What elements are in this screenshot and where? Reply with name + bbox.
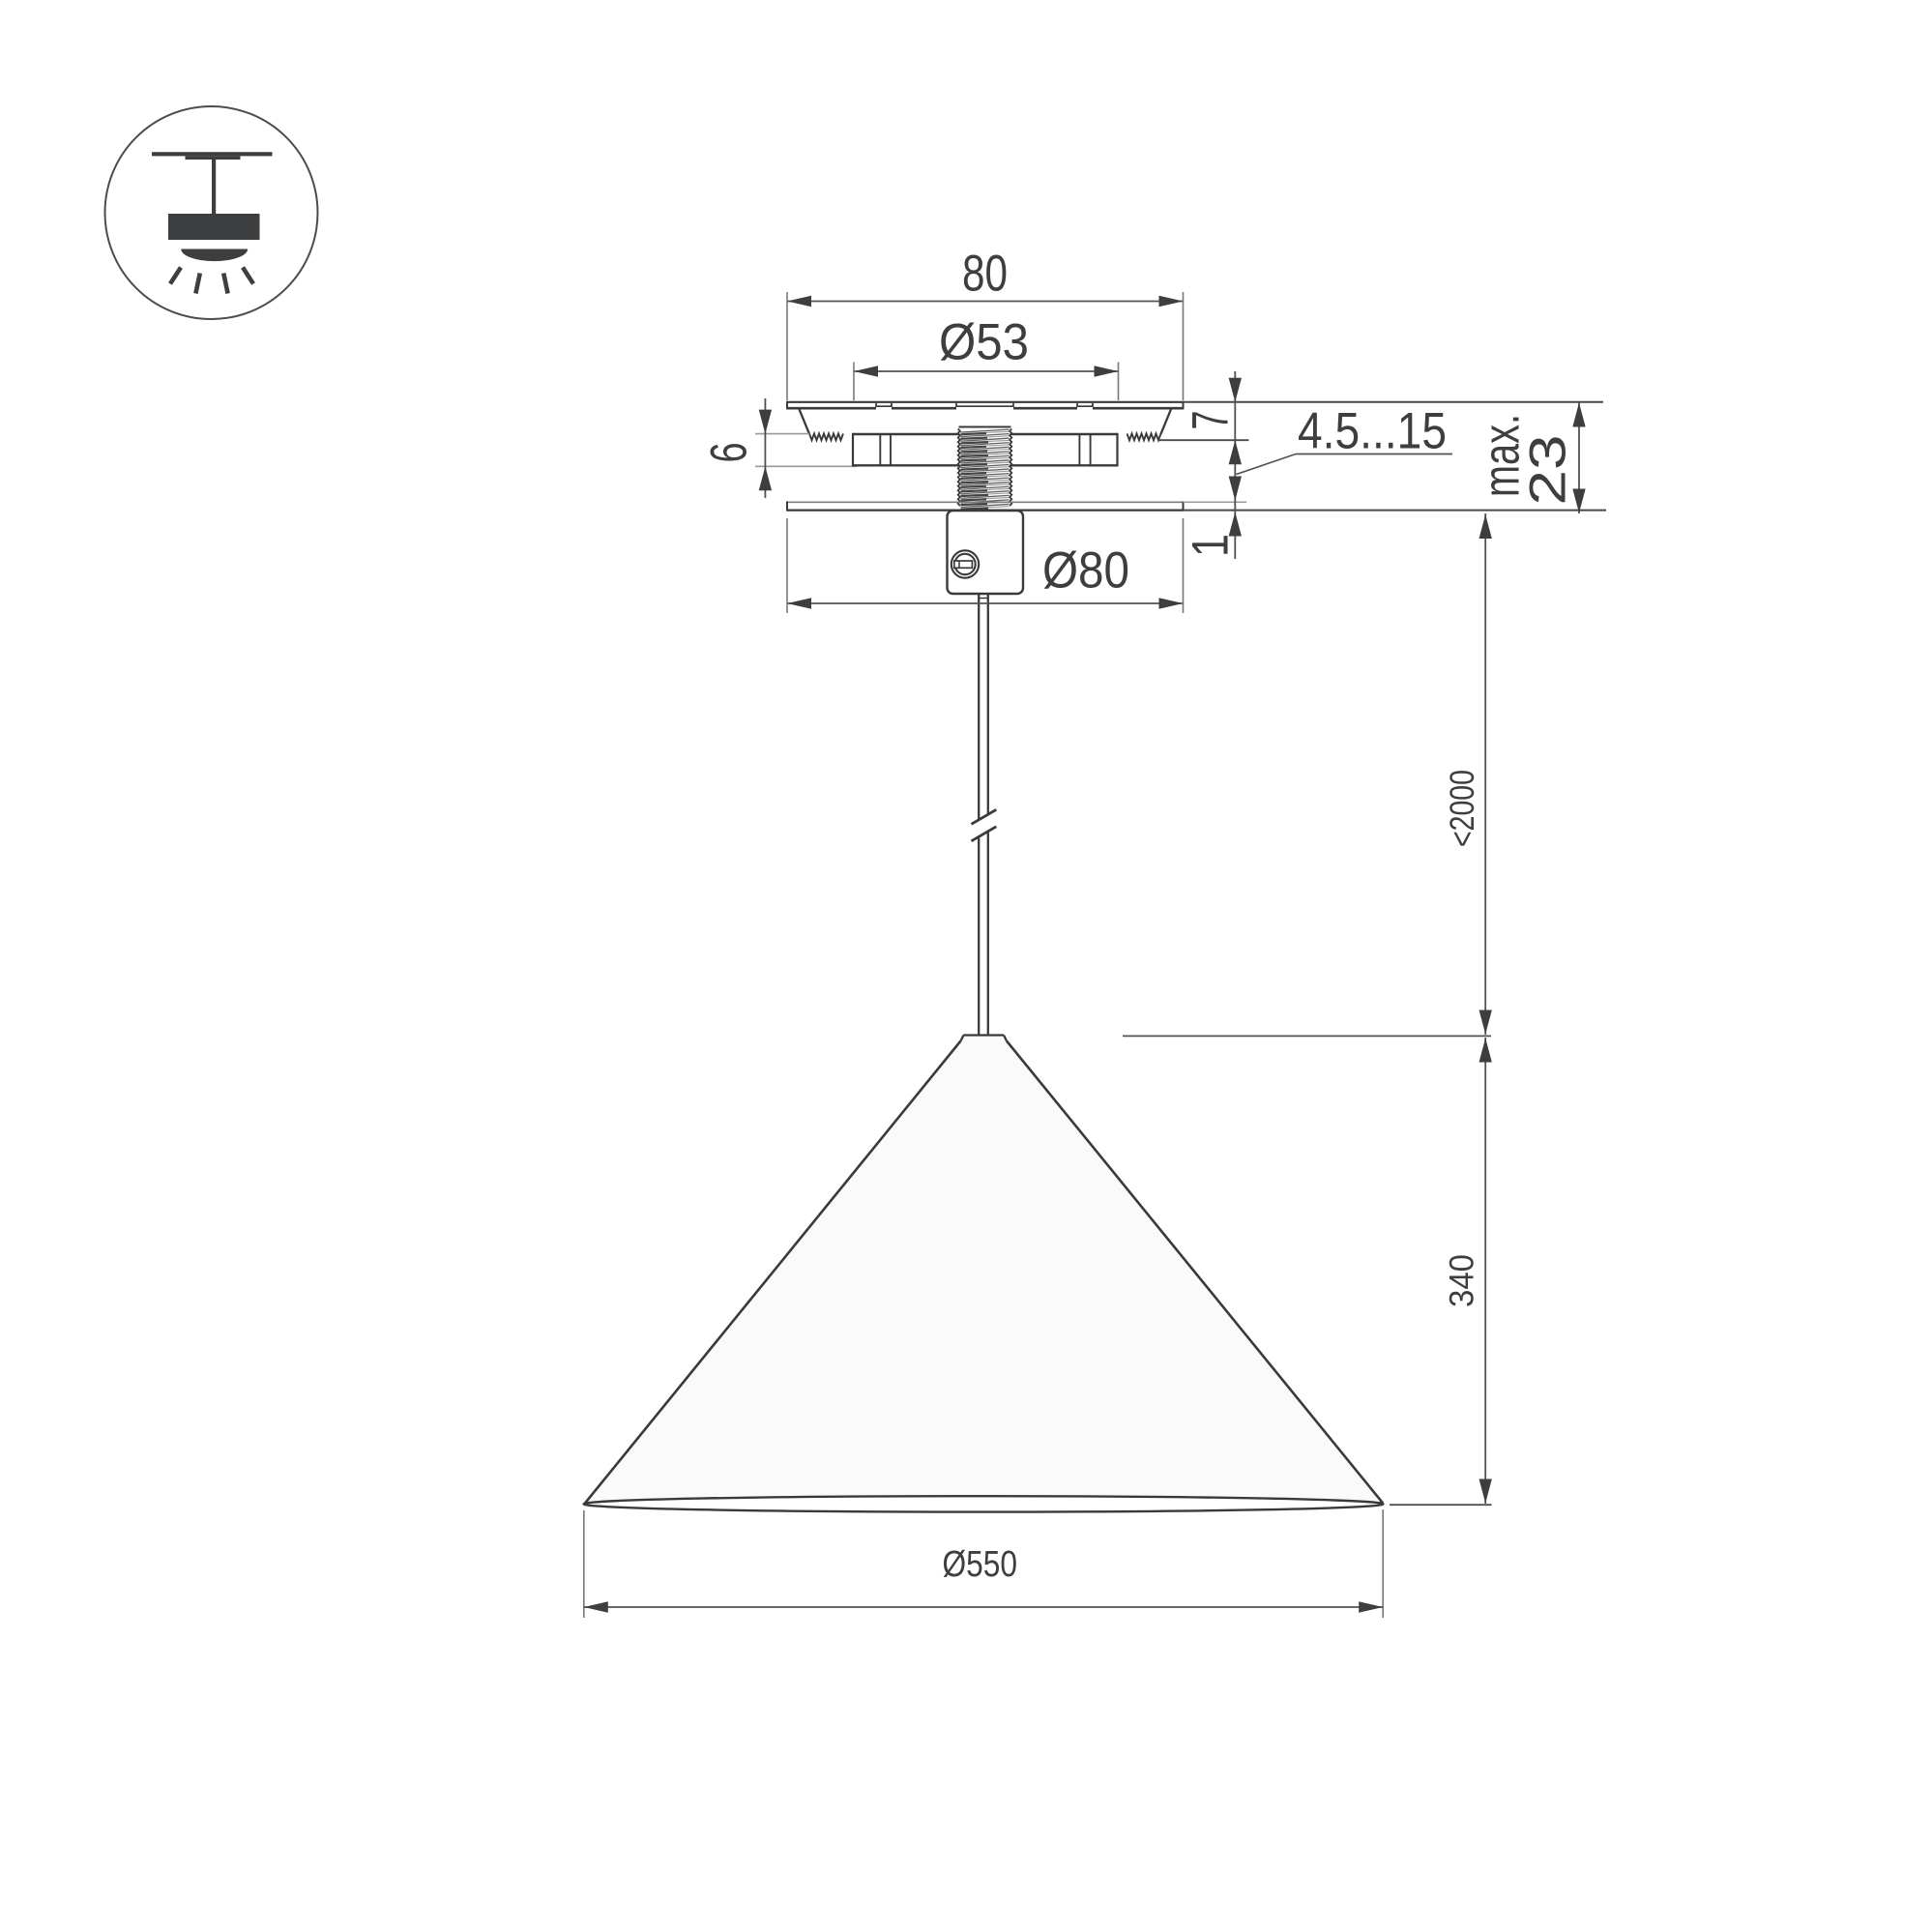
svg-text:Ø53: Ø53 (939, 314, 1029, 371)
svg-text:6: 6 (701, 443, 758, 463)
svg-text:<2000: <2000 (1444, 770, 1481, 847)
svg-text:4.5...15: 4.5...15 (1298, 403, 1447, 460)
svg-text:Ø80: Ø80 (1042, 542, 1129, 600)
svg-text:80: 80 (962, 246, 1008, 303)
svg-text:7: 7 (1183, 411, 1240, 430)
svg-text:Ø550: Ø550 (943, 1544, 1018, 1585)
svg-text:1: 1 (1183, 534, 1240, 557)
svg-text:340: 340 (1444, 1254, 1481, 1307)
svg-text:23: 23 (1520, 435, 1577, 506)
